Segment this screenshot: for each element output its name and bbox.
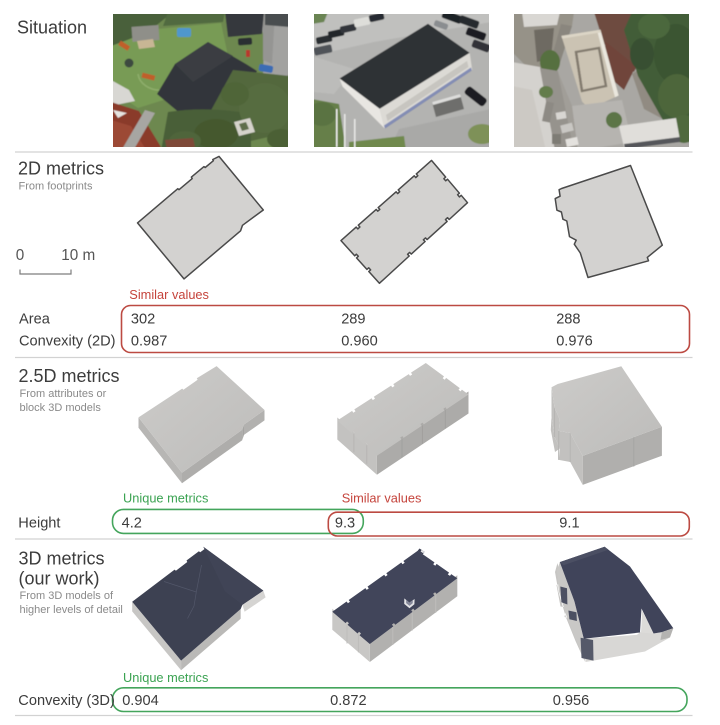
svg-text:Convexity (2D): Convexity (2D) (19, 334, 116, 350)
svg-text:4.2: 4.2 (122, 516, 142, 532)
svg-text:Similar values: Similar values (129, 287, 209, 302)
svg-text:Height: Height (18, 516, 60, 532)
svg-text:0.976: 0.976 (556, 334, 593, 350)
svg-text:288: 288 (556, 311, 580, 327)
svg-text:0.872: 0.872 (330, 693, 367, 709)
svg-text:10 m: 10 m (61, 247, 95, 264)
svg-text:Similar values: Similar values (342, 491, 422, 506)
svg-text:0.987: 0.987 (131, 334, 168, 350)
svg-text:Unique metrics: Unique metrics (123, 670, 208, 685)
svg-text:Convexity (3D): Convexity (3D) (18, 693, 115, 709)
svg-text:Unique metrics: Unique metrics (123, 491, 208, 506)
svg-text:From footprints: From footprints (19, 180, 93, 192)
svg-text:0: 0 (16, 247, 25, 264)
svg-text:From 3D models of: From 3D models of (20, 590, 114, 602)
svg-text:0.960: 0.960 (341, 334, 378, 350)
svg-text:9.3: 9.3 (335, 516, 355, 532)
svg-text:block 3D models: block 3D models (20, 402, 102, 414)
svg-text:0.904: 0.904 (122, 693, 159, 709)
svg-text:Area: Area (19, 311, 51, 327)
svg-text:2.5D metrics: 2.5D metrics (19, 366, 120, 386)
svg-text:0.956: 0.956 (553, 693, 590, 709)
svg-text:3D metrics: 3D metrics (19, 549, 105, 569)
svg-text:302: 302 (131, 311, 155, 327)
svg-text:higher levels of detail: higher levels of detail (20, 604, 123, 616)
svg-text:(our work): (our work) (19, 569, 100, 589)
svg-text:2D metrics: 2D metrics (18, 158, 104, 178)
svg-text:9.1: 9.1 (559, 516, 579, 532)
svg-text:From attributes or: From attributes or (20, 388, 107, 400)
svg-text:Situation: Situation (17, 18, 87, 38)
svg-text:289: 289 (341, 311, 365, 327)
